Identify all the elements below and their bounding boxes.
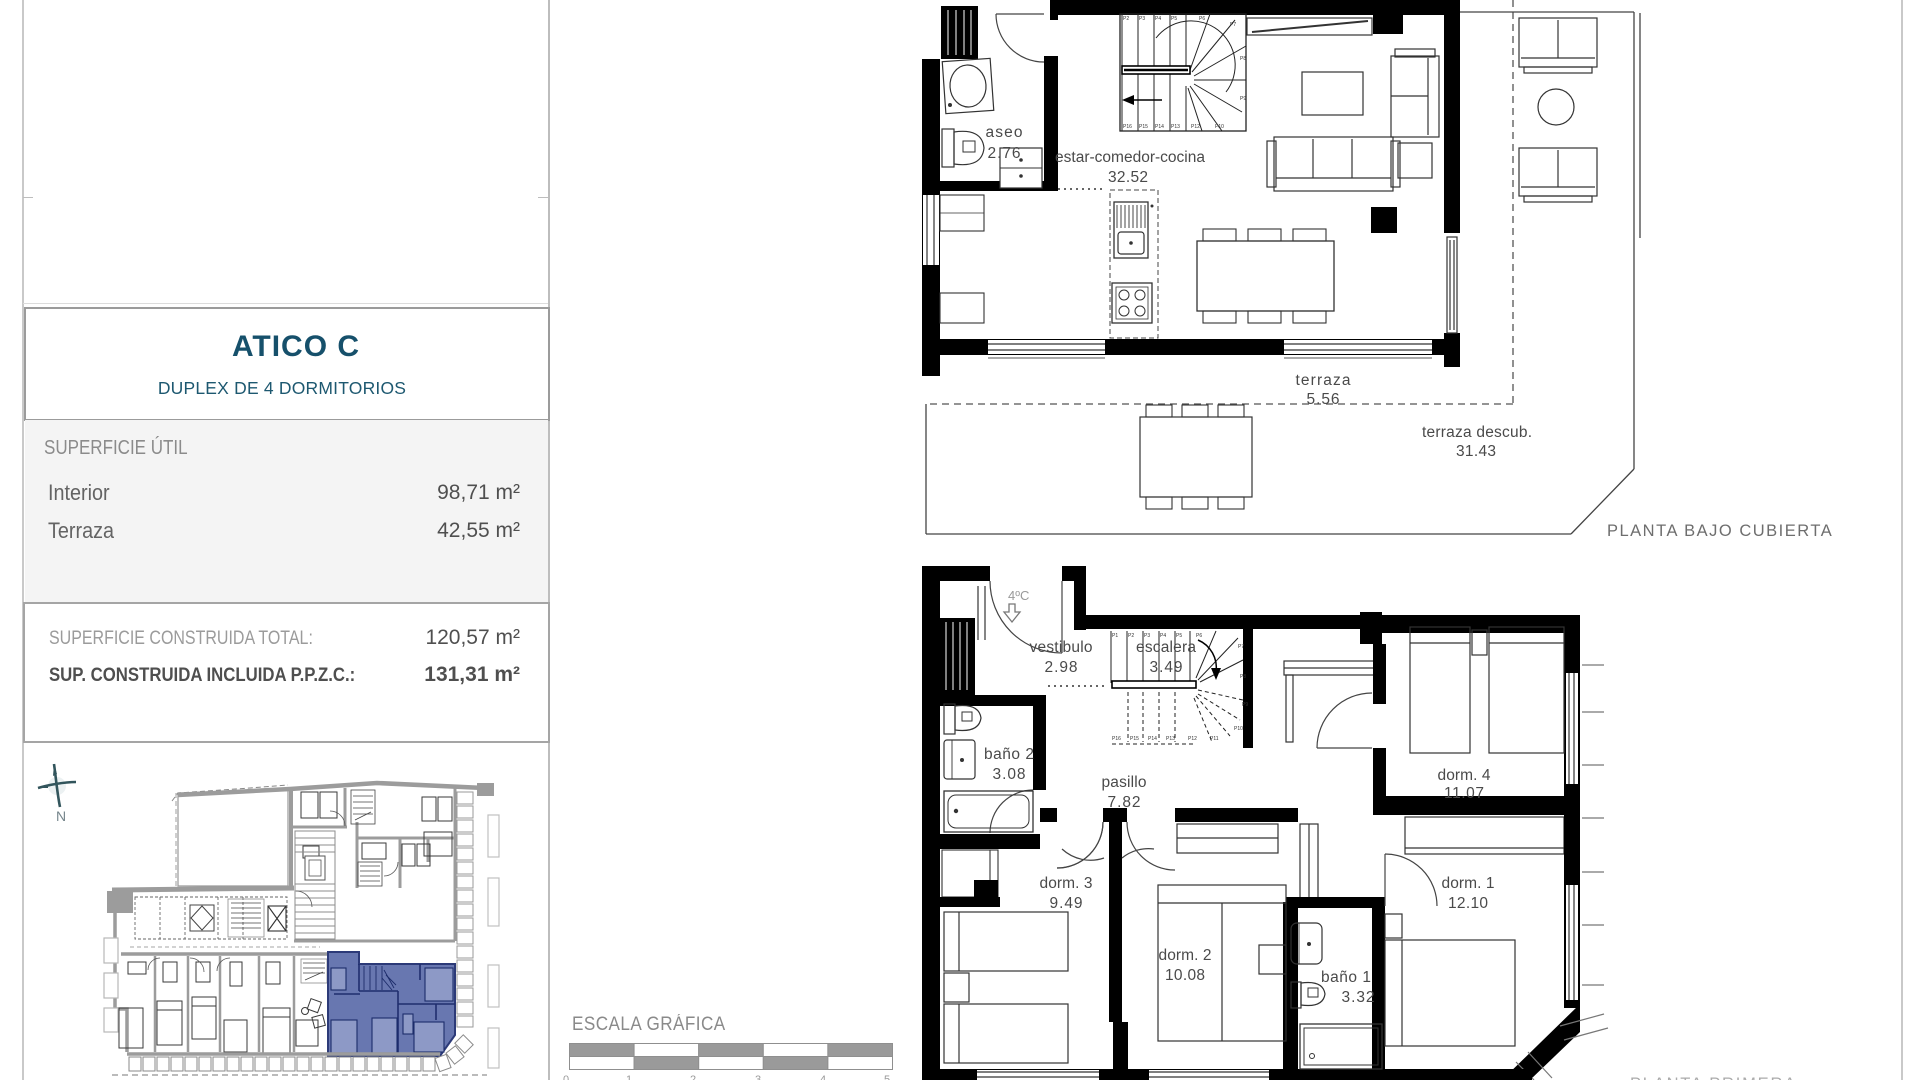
svg-text:P1: P1 [1112, 633, 1118, 639]
svg-text:32.52: 32.52 [1108, 169, 1148, 186]
svg-text:P13: P13 [1171, 124, 1180, 130]
svg-text:PLANTA BAJO CUBIERTA: PLANTA BAJO CUBIERTA [1607, 522, 1833, 540]
svg-text:4ºC: 4ºC [1008, 588, 1029, 603]
svg-text:N: N [56, 808, 66, 824]
svg-text:P16: P16 [1112, 736, 1121, 742]
svg-text:P9: P9 [1242, 702, 1248, 708]
svg-text:dorm. 2: dorm. 2 [1159, 947, 1212, 964]
svg-text:P6: P6 [1196, 633, 1202, 639]
svg-text:P6: P6 [1199, 16, 1205, 22]
svg-text:P2: P2 [1128, 633, 1134, 639]
svg-text:estar-comedor-cocina: estar-comedor-cocina [1055, 149, 1205, 166]
svg-text:dorm. 3: dorm. 3 [1040, 875, 1093, 892]
svg-text:P12: P12 [1188, 736, 1197, 742]
svg-text:P5: P5 [1171, 16, 1177, 22]
svg-text:terraza descub.: terraza descub. [1422, 424, 1532, 441]
svg-text:11.07: 11.07 [1444, 785, 1484, 802]
svg-text:P7: P7 [1238, 644, 1244, 650]
svg-text:P7: P7 [1230, 22, 1236, 28]
svg-text:P14: P14 [1155, 124, 1164, 130]
svg-text:P12: P12 [1191, 124, 1200, 130]
svg-text:baño 2: baño 2 [984, 746, 1034, 763]
svg-text:P3: P3 [1139, 16, 1145, 22]
svg-text:5.56: 5.56 [1307, 391, 1340, 408]
svg-text:P4: P4 [1155, 16, 1161, 22]
svg-text:3.32: 3.32 [1342, 989, 1375, 1006]
svg-text:baño 1: baño 1 [1321, 969, 1371, 986]
svg-text:2.98: 2.98 [1045, 659, 1078, 676]
svg-text:P14: P14 [1148, 736, 1157, 742]
svg-text:PLANTA PRIMERA: PLANTA PRIMERA [1630, 1075, 1797, 1080]
svg-text:P9: P9 [1240, 96, 1246, 102]
svg-text:escalera: escalera [1136, 639, 1196, 656]
svg-text:P16: P16 [1123, 124, 1132, 130]
svg-text:P10: P10 [1234, 726, 1243, 732]
svg-text:P13: P13 [1166, 736, 1175, 742]
svg-text:7.82: 7.82 [1108, 794, 1141, 811]
svg-text:31.43: 31.43 [1456, 443, 1496, 460]
svg-text:P15: P15 [1139, 124, 1148, 130]
svg-text:P11: P11 [1210, 736, 1219, 742]
svg-text:dorm. 4: dorm. 4 [1438, 767, 1491, 784]
svg-text:P2: P2 [1123, 16, 1129, 22]
svg-text:2.76: 2.76 [988, 145, 1021, 162]
svg-text:vestibulo: vestibulo [1030, 639, 1093, 656]
svg-text:10.08: 10.08 [1165, 967, 1205, 984]
svg-text:P15: P15 [1130, 736, 1139, 742]
svg-text:12.10: 12.10 [1448, 895, 1488, 912]
svg-text:P8: P8 [1240, 674, 1246, 680]
svg-text:P8: P8 [1240, 56, 1246, 62]
svg-text:pasillo: pasillo [1102, 774, 1147, 791]
svg-text:9.49: 9.49 [1050, 895, 1083, 912]
svg-text:aseo: aseo [986, 124, 1023, 141]
svg-text:dorm. 1: dorm. 1 [1442, 875, 1495, 892]
svg-text:terraza: terraza [1296, 372, 1351, 389]
svg-text:P10: P10 [1215, 124, 1224, 130]
svg-text:3.08: 3.08 [993, 766, 1026, 783]
svg-text:3.49: 3.49 [1150, 659, 1183, 676]
